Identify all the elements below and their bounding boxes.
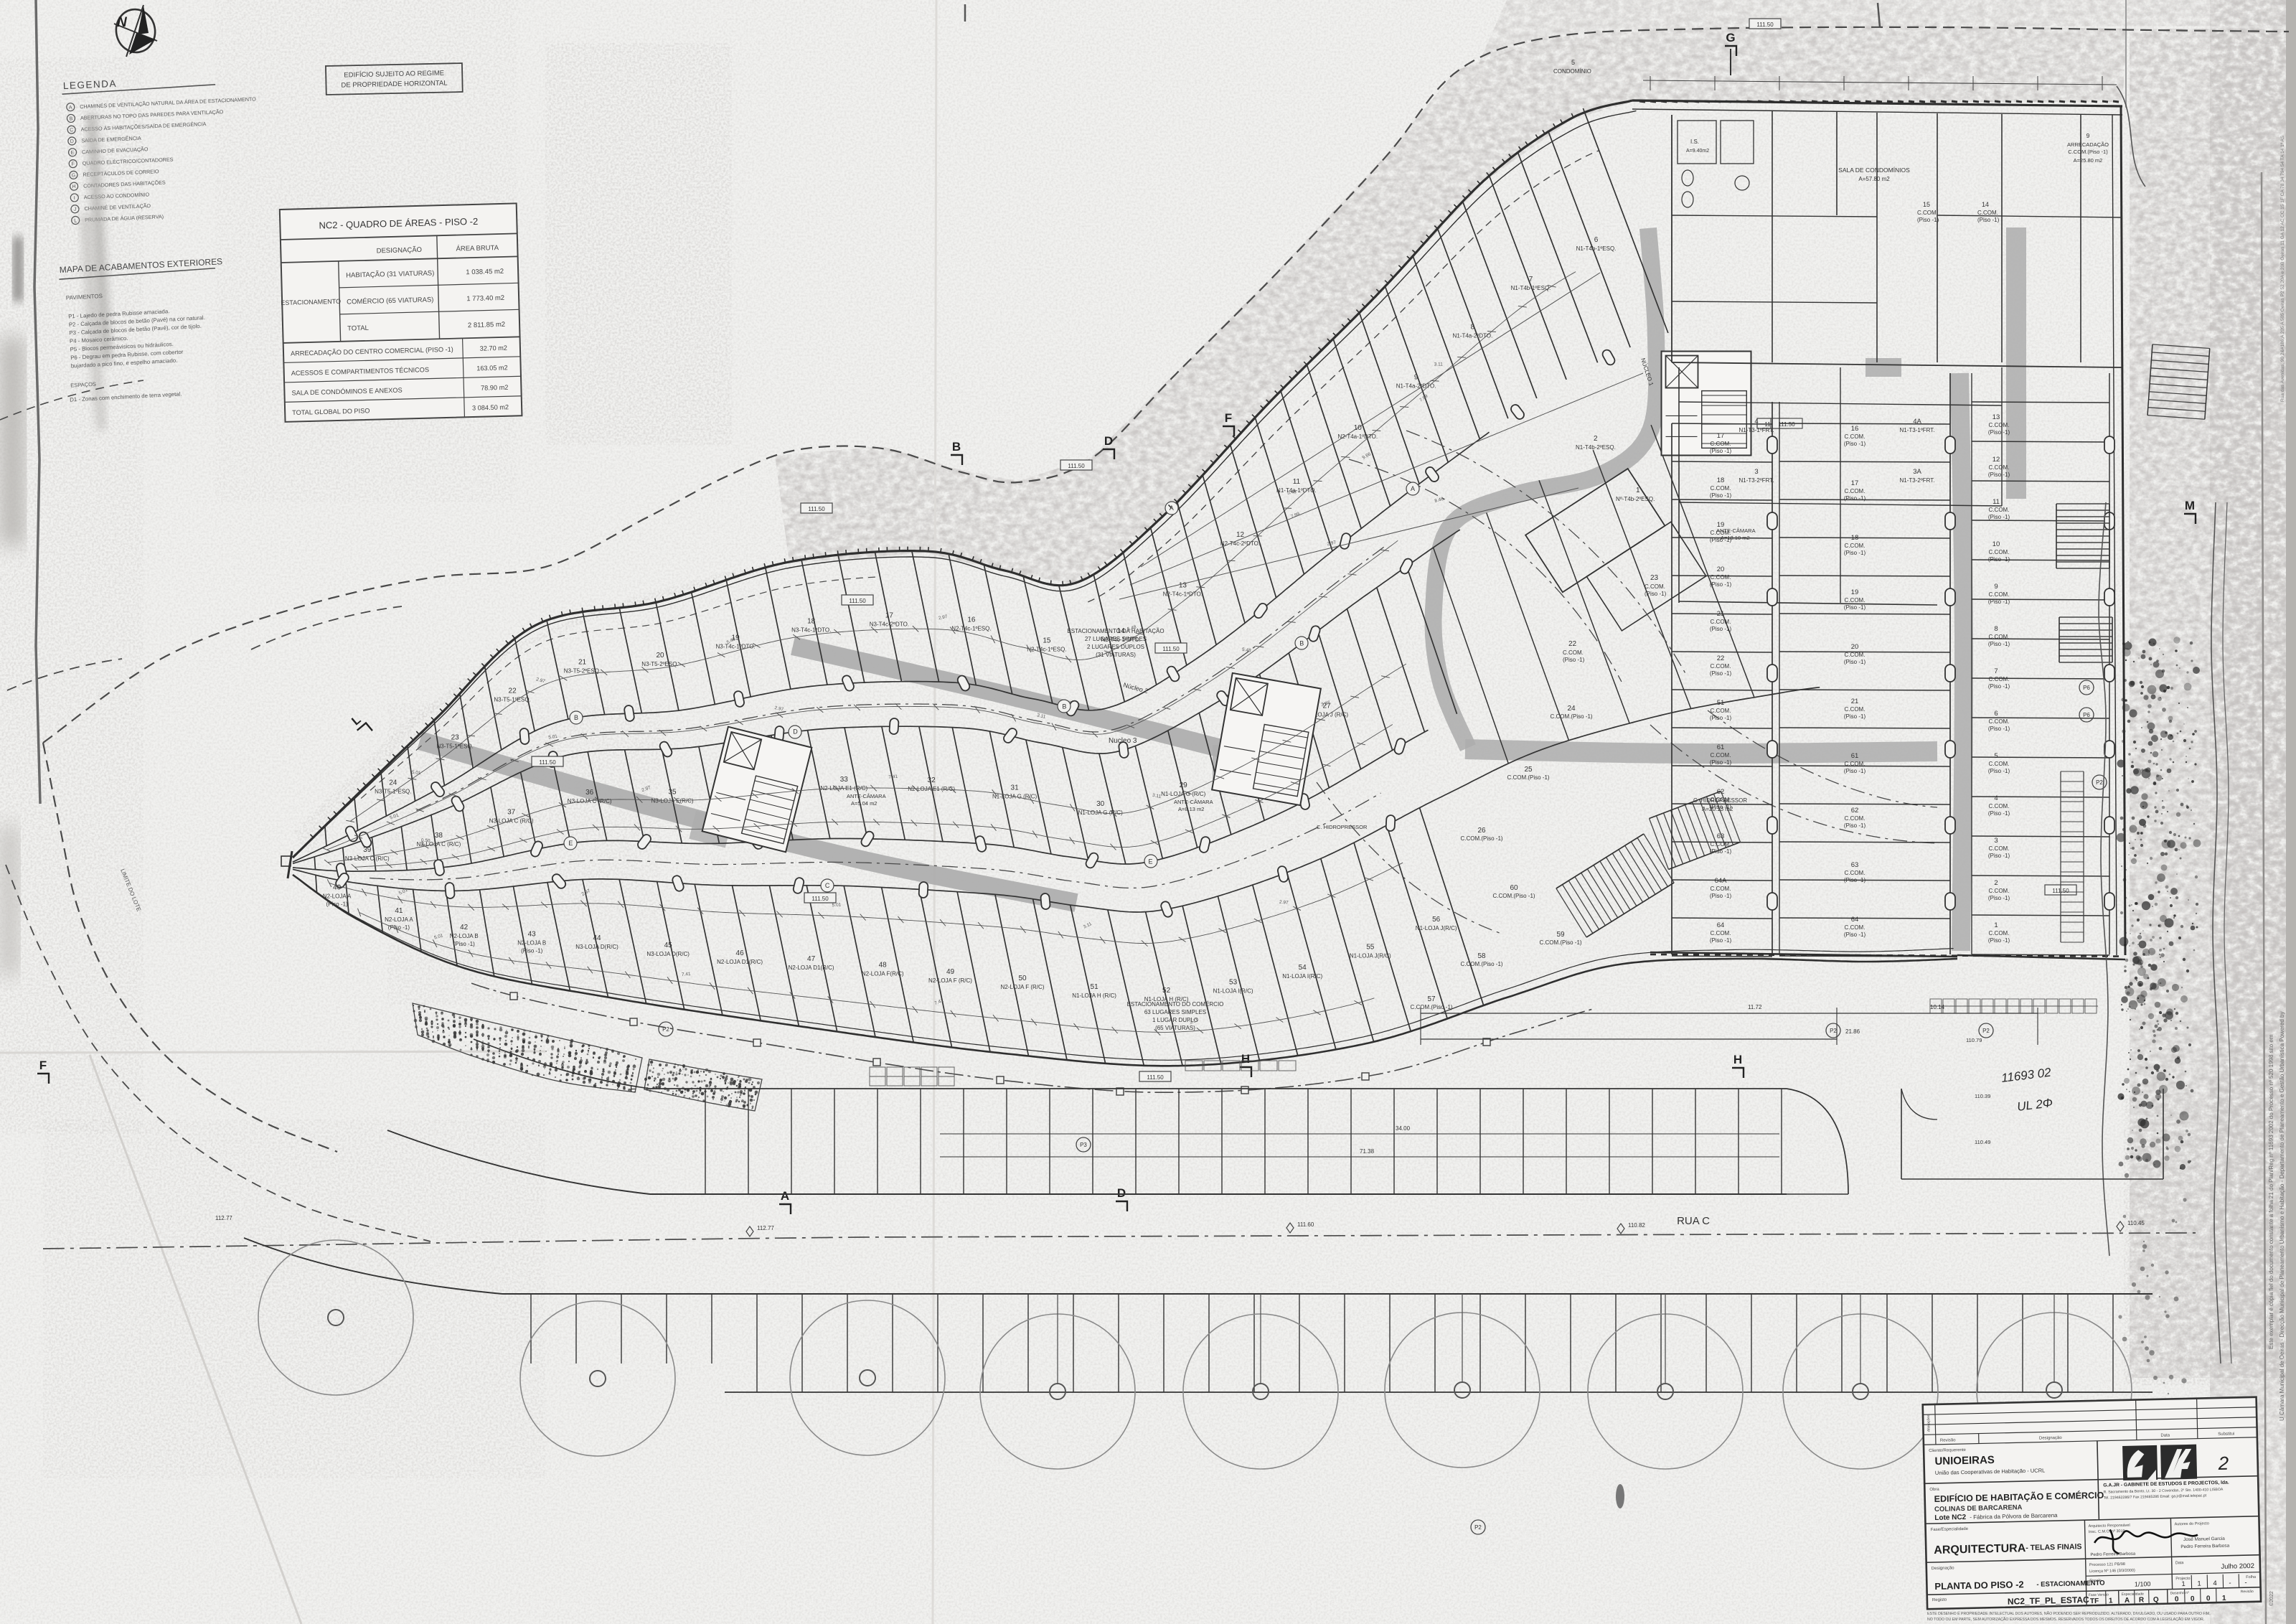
- svg-text:C.COM.: C.COM.: [1989, 676, 2010, 682]
- svg-text:N3-LOJA D(R/C): N3-LOJA D(R/C): [575, 944, 618, 950]
- svg-text:14: 14: [1982, 201, 1989, 208]
- svg-text:I: I: [74, 196, 75, 201]
- svg-text:3: 3: [1754, 468, 1758, 476]
- svg-text:N2-LOJA F (R/C): N2-LOJA F (R/C): [1001, 984, 1045, 990]
- svg-text:Revisão: Revisão: [1940, 1438, 1956, 1443]
- svg-text:52: 52: [1162, 987, 1171, 995]
- svg-text:(Piso -1): (Piso -1): [1710, 626, 1732, 632]
- svg-text:Fase/Especialidade: Fase/Especialidade: [1931, 1527, 1969, 1532]
- svg-text:N: N: [117, 15, 128, 30]
- svg-text:57: 57: [1427, 995, 1436, 1003]
- svg-text:Alterações: Alterações: [1926, 1414, 1932, 1432]
- svg-text:N2-LOJA A: N2-LOJA A: [323, 893, 352, 900]
- svg-text:C.COM.: C.COM.: [1989, 464, 2010, 471]
- svg-text:33: 33: [840, 776, 849, 784]
- svg-text:N1-T3-2ºFRT.: N1-T3-2ºFRT.: [1739, 477, 1774, 484]
- svg-text:36: 36: [585, 789, 594, 797]
- svg-text:C.COM.: C.COM.: [1711, 619, 1731, 625]
- svg-text:5.01: 5.01: [411, 770, 421, 776]
- svg-text:C.COM.: C.COM.: [1845, 924, 1865, 931]
- svg-text:C. HIDROPRESSOR: C. HIDROPRESSOR: [1317, 824, 1368, 830]
- svg-text:48: 48: [879, 962, 888, 970]
- svg-text:Escala: Escala: [2089, 1579, 2102, 1583]
- svg-text:H: H: [72, 184, 75, 189]
- svg-text:C.COM.: C.COM.: [1989, 718, 2010, 725]
- svg-text:C.COM.: C.COM.: [1989, 888, 2010, 894]
- svg-text:A=25.80 m2: A=25.80 m2: [2074, 157, 2103, 164]
- svg-text:Data: Data: [2160, 1433, 2170, 1437]
- svg-text:71.38: 71.38: [1360, 1148, 1375, 1155]
- svg-text:N1-LOJA I(R/C): N1-LOJA I(R/C): [1213, 988, 1253, 995]
- svg-text:ANTE-CÂMARA: ANTE-CÂMARA: [847, 793, 886, 799]
- svg-text:Rua das Avenidas, 90 2&#186;A: Rua das Avenidas, 90 2&#186;A 205 A 505 …: [2280, 135, 2285, 402]
- svg-text:A=20.13 m2: A=20.13 m2: [1702, 806, 1733, 812]
- svg-text:C.COM.: C.COM.: [1711, 841, 1731, 848]
- svg-text:4: 4: [2213, 1580, 2217, 1587]
- svg-text:32: 32: [928, 776, 936, 784]
- svg-text:C.COM.: C.COM.: [1845, 543, 1865, 549]
- svg-text:(Piso -1): (Piso -1): [1844, 604, 1866, 611]
- svg-text:C.COM.: C.COM.: [1845, 870, 1865, 876]
- svg-text:38: 38: [435, 832, 443, 840]
- svg-text:3A: 3A: [1913, 468, 1921, 476]
- svg-text:C.COM.: C.COM.: [1711, 485, 1731, 492]
- svg-text:1: 1: [2197, 1580, 2201, 1588]
- svg-text:N1-T3-1ºFRT.: N1-T3-1ºFRT.: [1739, 427, 1774, 433]
- svg-text:(Piso -1): (Piso -1): [1844, 495, 1866, 502]
- svg-text:N1-T3-2ºFRT.: N1-T3-2ºFRT.: [1899, 477, 1934, 484]
- svg-text:C.COM.(Piso -1): C.COM.(Piso -1): [1492, 893, 1535, 899]
- svg-text:N1-T4a-1ºDTO.: N1-T4a-1ºDTO.: [1276, 487, 1317, 494]
- svg-text:N3-T4c-1ºDTO.: N3-T4c-1ºDTO.: [715, 643, 755, 649]
- svg-text:(Piso -1): (Piso -1): [1988, 726, 2010, 732]
- svg-text:47: 47: [807, 955, 816, 963]
- svg-text:11.72: 11.72: [1748, 1004, 1762, 1010]
- svg-text:163.05 m2: 163.05 m2: [476, 364, 508, 372]
- svg-text:35: 35: [668, 788, 677, 796]
- svg-text:51: 51: [1091, 983, 1099, 991]
- svg-text:C.COM.: C.COM.: [1845, 488, 1865, 494]
- svg-text:B: B: [70, 116, 73, 121]
- svg-text:ÁREA BRUTA: ÁREA BRUTA: [456, 244, 499, 253]
- svg-text:30: 30: [1096, 800, 1105, 808]
- svg-text:N3-LOJA C (R/C): N3-LOJA C (R/C): [568, 798, 612, 804]
- svg-text:16: 16: [1851, 425, 1859, 433]
- svg-text:-: -: [2244, 1579, 2246, 1587]
- svg-text:3: 3: [1994, 837, 1998, 845]
- svg-text:C.COM.: C.COM.: [1989, 930, 2010, 937]
- svg-text:CONDOMÍNIO: CONDOMÍNIO: [1553, 68, 1591, 75]
- svg-text:3 084.50 m2: 3 084.50 m2: [472, 403, 509, 411]
- svg-text:N1-LOJA J(R/C): N1-LOJA J(R/C): [1416, 925, 1457, 931]
- svg-text:(Piso -1): (Piso -1): [326, 901, 348, 908]
- svg-text:9: 9: [1994, 583, 1998, 591]
- svg-text:C.COM.: C.COM.: [1845, 433, 1865, 440]
- svg-text:110.79: 110.79: [1966, 1037, 1982, 1043]
- svg-text:17: 17: [1851, 479, 1859, 487]
- svg-text:64A: 64A: [1715, 877, 1728, 885]
- svg-text:P6: P6: [2083, 685, 2090, 691]
- svg-text:(Piso -1): (Piso -1): [1988, 683, 2010, 690]
- svg-text:13: 13: [1992, 413, 2000, 421]
- svg-text:N2-LOJA B: N2-LOJA B: [450, 933, 479, 939]
- svg-text:111.50: 111.50: [1147, 1074, 1164, 1081]
- svg-text:110.39: 110.39: [1975, 1093, 1990, 1099]
- svg-text:C.COM.: C.COM.: [1989, 549, 2010, 555]
- svg-text:61: 61: [1717, 743, 1725, 751]
- svg-text:N2-LOJA D1(R/C): N2-LOJA D1(R/C): [717, 959, 763, 965]
- svg-text:N3-LOJA E(R/C): N3-LOJA E(R/C): [651, 797, 693, 804]
- svg-text:J: J: [74, 207, 77, 212]
- svg-text:2: 2: [2217, 1452, 2229, 1474]
- svg-text:C.COM.: C.COM.: [1989, 803, 2010, 809]
- svg-text:C.COM.: C.COM.: [1845, 652, 1865, 658]
- svg-text:51: 51: [1717, 699, 1725, 707]
- svg-text:P6: P6: [2083, 712, 2090, 718]
- svg-text:C.COM.: C.COM.: [1917, 210, 1938, 216]
- svg-text:1: 1: [1994, 921, 1998, 929]
- svg-text:(Piso -1): (Piso -1): [1844, 822, 1866, 829]
- svg-text:A: A: [69, 105, 72, 111]
- svg-text:Q: Q: [2153, 1596, 2159, 1604]
- svg-text:F: F: [39, 1059, 47, 1072]
- svg-text:3.11: 3.11: [1434, 362, 1444, 367]
- svg-text:24: 24: [1567, 705, 1576, 713]
- svg-text:22: 22: [509, 687, 517, 695]
- svg-text:N2-LOJA F (R/C): N2-LOJA F (R/C): [928, 977, 972, 984]
- svg-text:62: 62: [1851, 807, 1859, 815]
- svg-text:ARRECADAÇÃO: ARRECADAÇÃO: [2067, 141, 2109, 148]
- svg-text:17: 17: [885, 611, 894, 619]
- svg-text:11: 11: [1293, 478, 1301, 486]
- svg-text:C.COM.(Piso -1): C.COM.(Piso -1): [1507, 774, 1549, 781]
- svg-text:34.00: 34.00: [1396, 1125, 1411, 1132]
- svg-text:Nucleo 3: Nucleo 3: [1109, 737, 1137, 745]
- svg-text:5: 5: [1994, 752, 1998, 760]
- svg-text:20: 20: [656, 652, 664, 660]
- svg-text:C.COM.: C.COM.: [1845, 597, 1865, 604]
- svg-text:I.S.: I.S.: [1690, 139, 1699, 145]
- svg-text:5.48: 5.48: [1287, 489, 1297, 495]
- svg-text:60: 60: [1510, 884, 1518, 892]
- svg-text:15: 15: [1923, 201, 1930, 208]
- svg-text:C.COM.(Piso -1): C.COM.(Piso -1): [1460, 961, 1502, 967]
- svg-text:111.50: 111.50: [808, 506, 825, 512]
- svg-text:C.COM.: C.COM.: [1845, 706, 1865, 713]
- svg-text:6: 6: [1594, 236, 1599, 244]
- svg-text:N2-LOJA D1(R/C): N2-LOJA D1(R/C): [789, 964, 834, 971]
- svg-text:42: 42: [460, 924, 469, 931]
- svg-text:(Piso -1): (Piso -1): [1710, 893, 1732, 899]
- svg-text:(Piso -1): (Piso -1): [1988, 895, 2010, 901]
- svg-text:C.COM.: C.COM.: [1977, 210, 1998, 216]
- svg-text:(Piso -1): (Piso -1): [453, 941, 476, 947]
- svg-text:B: B: [1062, 703, 1066, 710]
- svg-text:P2: P2: [1982, 1028, 1990, 1034]
- svg-text:22: 22: [1717, 654, 1725, 662]
- svg-text:ESTACIONAMENTO DA HABITAÇÃO: ESTACIONAMENTO DA HABITAÇÃO: [1067, 628, 1164, 634]
- svg-text:(Piso -1): (Piso -1): [1844, 768, 1866, 774]
- svg-text:19: 19: [1717, 521, 1725, 529]
- svg-text:G: G: [72, 173, 76, 178]
- svg-text:8: 8: [1471, 324, 1475, 332]
- svg-text:F: F: [1225, 411, 1232, 425]
- svg-text:C.COM.(Piso -1): C.COM.(Piso -1): [1550, 713, 1592, 720]
- svg-text:7.41: 7.41: [888, 774, 898, 780]
- svg-text:31: 31: [1011, 784, 1020, 792]
- svg-text:111.50: 111.50: [539, 759, 556, 766]
- svg-text:(Piso -1): (Piso -1): [1988, 556, 2010, 563]
- svg-text:26: 26: [1477, 827, 1486, 835]
- svg-text:D: D: [1117, 1186, 1126, 1200]
- svg-text:(Piso -1): (Piso -1): [1988, 937, 2010, 944]
- svg-text:(Piso -1): (Piso -1): [1710, 759, 1732, 766]
- svg-text:A: A: [781, 1189, 789, 1203]
- svg-text:5: 5: [1571, 59, 1575, 66]
- svg-text:21: 21: [578, 659, 587, 667]
- svg-text:20: 20: [1851, 643, 1859, 651]
- svg-text:4: 4: [1994, 794, 1998, 802]
- svg-text:111.50: 111.50: [1778, 421, 1795, 428]
- svg-text:27 LUGARES SIMPLES: 27 LUGARES SIMPLES: [1085, 636, 1147, 642]
- svg-text:N1-T4b-1ºESQ.: N1-T4b-1ºESQ.: [1576, 245, 1617, 252]
- svg-text:59: 59: [1556, 931, 1565, 939]
- svg-text:PLANTA DO PISO -2: PLANTA DO PISO -2: [1934, 1579, 2024, 1592]
- svg-text:29: 29: [1180, 782, 1188, 789]
- svg-text:55: 55: [1366, 944, 1375, 952]
- svg-text:TOTAL: TOTAL: [347, 324, 369, 333]
- svg-text:(Piso -1): (Piso -1): [1988, 471, 2010, 478]
- svg-text:41: 41: [395, 907, 403, 915]
- svg-text:Registo: Registo: [1932, 1598, 1947, 1602]
- svg-text:C.COM.: C.COM.: [1989, 761, 2010, 767]
- svg-text:(Piso -1): (Piso -1): [1844, 659, 1866, 665]
- svg-text:N3-T5-2ºESQ.: N3-T5-2ºESQ.: [641, 661, 678, 667]
- svg-text:Designação: Designação: [2039, 1436, 2062, 1441]
- svg-text:15: 15: [1043, 637, 1051, 645]
- svg-text:H: H: [1241, 1052, 1250, 1066]
- svg-text:(Piso -1): (Piso -1): [1844, 550, 1866, 556]
- svg-text:49: 49: [946, 968, 955, 976]
- svg-text:Obra: Obra: [1929, 1488, 1939, 1492]
- svg-text:D: D: [1104, 434, 1113, 448]
- svg-text:Cliente/Requerente: Cliente/Requerente: [1929, 1448, 1966, 1453]
- svg-text:16: 16: [967, 616, 976, 624]
- svg-text:1: 1: [1636, 487, 1640, 494]
- svg-text:25: 25: [1524, 766, 1533, 774]
- svg-text:9: 9: [1414, 374, 1418, 382]
- svg-text:N3-T5-1ºESQ.: N3-T5-1ºESQ.: [375, 788, 411, 794]
- svg-text:54: 54: [1299, 964, 1307, 972]
- svg-text:N1-T4a-2ºDTO.: N1-T4a-2ºDTO.: [1396, 383, 1436, 390]
- svg-text:C.COM.: C.COM.: [1989, 634, 2010, 640]
- svg-text:N3-LOJA C (R/C): N3-LOJA C (R/C): [345, 855, 390, 862]
- svg-text:C.COM.: C.COM.: [1711, 886, 1731, 892]
- svg-text:A=5.04 m2: A=5.04 m2: [851, 800, 877, 807]
- svg-text:64: 64: [1717, 921, 1725, 929]
- svg-text:ARQUITECTURA: ARQUITECTURA: [1934, 1542, 2026, 1557]
- svg-text:(Piso -1): (Piso -1): [1988, 853, 2010, 859]
- svg-text:Licença Nº 146 (3/3/2000): Licença Nº 146 (3/3/2000): [2089, 1568, 2135, 1574]
- svg-text:23: 23: [451, 733, 460, 741]
- svg-text:B: B: [952, 440, 961, 454]
- svg-text:24: 24: [389, 779, 397, 787]
- svg-text:E: E: [568, 840, 573, 847]
- svg-text:(Piso -1): (Piso -1): [1844, 931, 1866, 938]
- svg-text:N1-T3-1ºFRT.: N1-T3-1ºFRT.: [1899, 427, 1934, 433]
- svg-text:TF: TF: [2090, 1597, 2099, 1605]
- svg-text:6: 6: [1994, 710, 1998, 718]
- svg-text:ESPAÇOS: ESPAÇOS: [70, 381, 96, 389]
- svg-text:44: 44: [593, 934, 601, 942]
- svg-text:P3: P3: [1080, 1142, 1087, 1148]
- svg-text:(Piso -1): (Piso -1): [1710, 670, 1732, 677]
- svg-text:Insc. C.M.O. nº 3019: Insc. C.M.O. nº 3019: [2089, 1529, 2125, 1534]
- svg-text:111.50: 111.50: [1162, 646, 1180, 652]
- svg-text:Este exemplar é cópia fiel do: Este exemplar é cópia fiel do documento …: [2268, 1034, 2274, 1349]
- svg-text:L: L: [74, 218, 77, 223]
- svg-text:N3-T4c-1ºDTO.: N3-T4c-1ºDTO.: [791, 627, 831, 634]
- svg-text:112.77: 112.77: [757, 1225, 774, 1231]
- svg-text:N3-LOJA D(R/C): N3-LOJA D(R/C): [646, 951, 690, 957]
- svg-text:12: 12: [1992, 456, 2000, 464]
- svg-text:C.COM.: C.COM.: [1711, 752, 1731, 759]
- svg-text:8: 8: [1994, 625, 1998, 633]
- svg-text:2: 2: [1994, 879, 1998, 887]
- svg-text:62: 62: [1717, 788, 1725, 796]
- svg-text:P2: P2: [1830, 1028, 1837, 1034]
- svg-text:64: 64: [1851, 916, 1859, 924]
- svg-text:C.COM.: C.COM.: [1989, 507, 2010, 513]
- svg-text:53: 53: [1229, 979, 1238, 987]
- svg-text:112.77: 112.77: [215, 1215, 232, 1221]
- svg-text:H: H: [1733, 1053, 1742, 1066]
- svg-text:(Piso -1): (Piso -1): [1844, 877, 1866, 883]
- svg-text:C.COM.: C.COM.: [1845, 761, 1865, 767]
- svg-text:43: 43: [528, 931, 537, 939]
- svg-text:Desenho nº: Desenho nº: [2170, 1591, 2189, 1596]
- svg-text:N2-T4c-2ºDTO.: N2-T4c-2ºDTO.: [1220, 540, 1260, 547]
- svg-text:45: 45: [664, 942, 673, 949]
- svg-text:N2-LOJA B: N2-LOJA B: [517, 940, 546, 947]
- svg-text:63 LUGARES SIMPLES: 63 LUGARES SIMPLES: [1144, 1009, 1206, 1015]
- svg-text:A: A: [1411, 485, 1415, 492]
- svg-text:(Piso -1): (Piso -1): [521, 948, 543, 954]
- svg-text:Substitui: Substitui: [2218, 1432, 2234, 1437]
- svg-text:A=9.40m2: A=9.40m2: [1686, 149, 1709, 154]
- svg-text:C.COM.(Piso -1): C.COM.(Piso -1): [1460, 835, 1502, 842]
- svg-text:C: C: [70, 128, 73, 133]
- svg-text:21: 21: [1851, 698, 1859, 705]
- svg-text:111.50: 111.50: [1756, 22, 1774, 28]
- svg-text:(Piso -1): (Piso -1): [1988, 514, 2010, 520]
- svg-text:18: 18: [807, 618, 816, 626]
- svg-text:111.50: 111.50: [849, 598, 866, 604]
- svg-text:ANTE-CÂMARA: ANTE-CÂMARA: [1174, 799, 1213, 805]
- svg-text:(Piso -1): (Piso -1): [1977, 217, 2000, 223]
- svg-text:N1-T4b-1ºESQ.: N1-T4b-1ºESQ.: [1511, 285, 1551, 291]
- svg-text:N1-T4b-2ºESQ.: N1-T4b-2ºESQ.: [1576, 444, 1616, 451]
- svg-text:SALA DE CONDOMÍNIOS: SALA DE CONDOMÍNIOS: [1838, 166, 1910, 174]
- svg-text:Revisão: Revisão: [2241, 1590, 2254, 1594]
- svg-text:G: G: [1726, 31, 1735, 44]
- svg-text:C.COM.: C.COM.: [1563, 649, 1584, 656]
- svg-text:Julho 2002: Julho 2002: [2221, 1562, 2254, 1571]
- svg-text:2 811.85 m2: 2 811.85 m2: [468, 321, 505, 329]
- svg-text:E: E: [71, 151, 75, 156]
- svg-text:B: B: [1299, 639, 1304, 647]
- svg-text:ESTACIONAMENTO DO COMÉRCIO: ESTACIONAMENTO DO COMÉRCIO: [1127, 1001, 1224, 1008]
- svg-text:63: 63: [1717, 832, 1725, 840]
- svg-text:12: 12: [1236, 531, 1245, 539]
- svg-text:21.86: 21.86: [1845, 1028, 1860, 1035]
- svg-text:9: 9: [2086, 132, 2090, 139]
- svg-text:(Piso -1): (Piso -1): [1917, 217, 1939, 223]
- svg-text:7: 7: [1529, 276, 1533, 283]
- svg-text:E: E: [1148, 858, 1152, 865]
- svg-text:1 773.40 m2: 1 773.40 m2: [466, 294, 504, 303]
- svg-text:C.COM.(Piso -1): C.COM.(Piso -1): [1410, 1004, 1452, 1010]
- svg-text:C.COM.: C.COM.: [1711, 530, 1731, 536]
- svg-text:F: F: [71, 162, 75, 167]
- svg-text:N3-T5-1ºESQ.: N3-T5-1ºESQ.: [494, 696, 530, 703]
- svg-text:0: 0: [2206, 1595, 2211, 1602]
- svg-text:C.COM.: C.COM.: [1711, 930, 1731, 937]
- svg-text:Designação: Designação: [1932, 1566, 1954, 1571]
- svg-text:UNIOEIRAS: UNIOEIRAS: [1934, 1454, 1995, 1468]
- svg-text:2.97: 2.97: [1279, 900, 1289, 906]
- svg-text:61: 61: [1851, 752, 1859, 760]
- svg-text:1: 1: [2181, 1580, 2186, 1588]
- svg-text:0: 0: [2191, 1595, 2195, 1603]
- svg-text:7: 7: [1994, 667, 1998, 675]
- svg-text:- TELAS FINAIS: - TELAS FINAIS: [2026, 1542, 2081, 1552]
- svg-text:58: 58: [1477, 952, 1486, 960]
- svg-text:(Piso -1): (Piso -1): [1710, 581, 1732, 588]
- svg-text:C.COM.: C.COM.: [1711, 708, 1731, 714]
- svg-text:5.01: 5.01: [832, 902, 842, 908]
- svg-text:10: 10: [1992, 540, 2000, 548]
- svg-text:19: 19: [1851, 588, 1859, 596]
- svg-text:(Piso -1): (Piso -1): [1844, 713, 1866, 720]
- svg-text:110.49: 110.49: [1975, 1139, 1990, 1145]
- svg-text:21: 21: [1717, 610, 1725, 618]
- svg-text:10.14: 10.14: [1930, 1004, 1945, 1010]
- svg-text:63: 63: [1851, 861, 1859, 869]
- svg-text:C.COM.: C.COM.: [1845, 815, 1865, 822]
- svg-text:50: 50: [1018, 975, 1027, 982]
- svg-text:(Piso -1): (Piso -1): [1563, 657, 1585, 663]
- svg-text:C.COM.: C.COM.: [1711, 574, 1731, 581]
- svg-text:Nº-T4b-2ºESQ.: Nº-T4b-2ºESQ.: [1616, 496, 1655, 502]
- svg-text:(Piso -1): (Piso -1): [1710, 448, 1732, 454]
- svg-text:11: 11: [1992, 498, 2000, 506]
- svg-text:D: D: [70, 139, 74, 144]
- svg-text:C.COM.: C.COM.: [1645, 583, 1665, 590]
- svg-text:(Piso -1): (Piso -1): [1988, 641, 2010, 647]
- svg-text:56: 56: [1432, 916, 1441, 924]
- svg-text:2 LUGARES DUPLOS: 2 LUGARES DUPLOS: [1087, 644, 1144, 650]
- svg-text:RUA C: RUA C: [1677, 1215, 1710, 1227]
- svg-text:C.COM.(Piso -1): C.COM.(Piso -1): [1539, 939, 1581, 946]
- svg-text:110.82: 110.82: [1628, 1222, 1645, 1229]
- svg-text:(Piso -1): (Piso -1): [1988, 429, 2010, 436]
- svg-text:22: 22: [1568, 640, 1577, 648]
- svg-text:©2022: ©2022: [2269, 1591, 2274, 1606]
- svg-text:B: B: [574, 714, 578, 721]
- svg-text:P2: P2: [2096, 779, 2103, 786]
- svg-text:C. HIDROPRESSOR: C. HIDROPRESSOR: [1693, 797, 1747, 804]
